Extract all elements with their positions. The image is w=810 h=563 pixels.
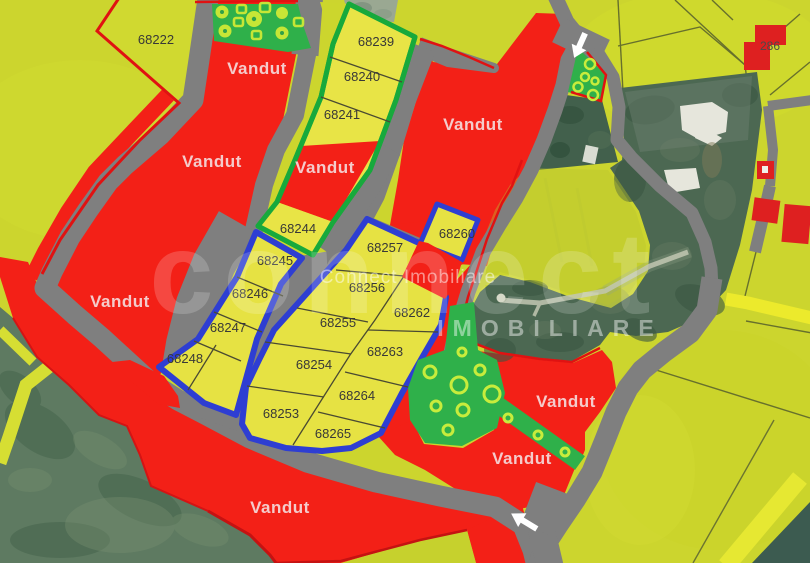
svg-text:68222: 68222 [138,32,174,47]
svg-text:68248: 68248 [167,351,203,366]
svg-text:IMOBILIARE: IMOBILIARE [437,315,662,341]
svg-text:68241: 68241 [324,107,360,122]
svg-text:Vandut: Vandut [492,449,552,468]
svg-text:Connect Imobiliare: Connect Imobiliare [320,267,496,288]
svg-text:68265: 68265 [315,426,351,441]
svg-text:68254: 68254 [296,357,332,372]
svg-text:Vandut: Vandut [443,115,503,134]
svg-text:68263: 68263 [367,344,403,359]
svg-text:Vandut: Vandut [295,158,355,177]
svg-text:Vandut: Vandut [227,59,287,78]
svg-text:68239: 68239 [358,34,394,49]
svg-text:Vandut: Vandut [90,292,150,311]
svg-text:68240: 68240 [344,69,380,84]
svg-text:Vandut: Vandut [536,392,596,411]
svg-text:68264: 68264 [339,388,375,403]
svg-text:Vandut: Vandut [250,498,310,517]
svg-text:68253: 68253 [263,406,299,421]
svg-text:286: 286 [760,39,780,53]
svg-text:Vandut: Vandut [182,152,242,171]
